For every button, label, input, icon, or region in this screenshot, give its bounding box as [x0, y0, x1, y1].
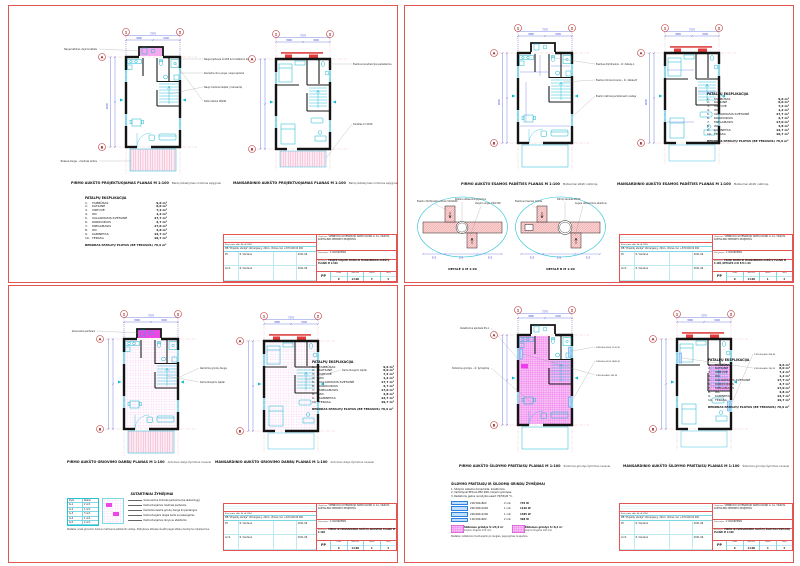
svg-text:9000: 9000: [106, 103, 109, 109]
svg-text:3290: 3290: [161, 319, 167, 322]
sheet-top-left: 1 2 A B 39803290 7270 9000 Nauja katilin…: [8, 5, 398, 283]
floor-heating-sample: Šildomos grindys S=8,2 m²klojimo žingsni…: [512, 525, 563, 533]
svg-text:B: B: [652, 427, 655, 431]
sheet-bottom-right: 1 2 A B 39803290 7270 22K-500x1000 1120 …: [404, 285, 794, 563]
title-block: Kval. patv. dok. Nr. A 2134 MB "Projektų…: [223, 234, 397, 282]
plan-caption: PIRMO AUKŠTO PROJEKTUOJAMAS PLANAS M 1:1…: [71, 181, 221, 185]
svg-text:A: A: [101, 55, 104, 59]
svg-text:B: B: [99, 427, 102, 431]
svg-text:3980: 3980: [134, 319, 140, 322]
svg-text:7270: 7270: [542, 28, 548, 31]
svg-text:3980: 3980: [687, 319, 693, 322]
svg-text:3980: 3980: [528, 315, 534, 318]
plan-caption: PIRMO AUKŠTO GRIOVIMO DARBŲ PLANAS M 1:1…: [67, 460, 211, 464]
plan-caption: PIRMO AUKŠTO ŠILDYMO PRIETAISŲ PLANAS M …: [459, 464, 610, 468]
svg-text:510: 510: [488, 257, 493, 260]
svg-text:7270: 7270: [300, 34, 306, 37]
svg-text:3980: 3980: [136, 37, 142, 40]
svg-text:Esamo dūmtraukio mūras 510x640: Esamo dūmtraukio mūras 510x640: [417, 200, 458, 203]
svg-text:Angos užtaisomos skiediniu: Angos užtaisomos skiediniu: [575, 202, 607, 205]
legend-entry: Demontuojamos durys su staktomis: [128, 518, 237, 523]
svg-text:Esamos krosnies mūras: Esamos krosnies mūras: [515, 200, 543, 203]
radiator-line-sample: [451, 512, 468, 517]
collector-box: [521, 364, 528, 369]
svg-text:7270: 7270: [542, 310, 548, 313]
svg-text:Kolektorinė spintelė KS-1: Kolektorinė spintelė KS-1: [460, 327, 489, 330]
svg-text:B: B: [239, 429, 242, 433]
svg-text:B: B: [493, 141, 496, 145]
svg-text:3980: 3980: [286, 39, 292, 42]
svg-text:A: A: [239, 339, 242, 343]
svg-text:Griaunama pertvara: Griaunama pertvara: [72, 330, 96, 333]
drawing-title: PROJEKTUOJAMI PIRMO IR MANSARDINIO AUKŠT…: [318, 259, 389, 265]
svg-text:7270: 7270: [148, 314, 154, 317]
floor-heating-sample: Šildomos grindys S=24,6 m²klojimo žingsn…: [451, 525, 504, 533]
svg-text:3290: 3290: [301, 321, 307, 324]
client-name: V. PAVARDENIS: [330, 251, 346, 254]
svg-text:Šildomos grindys – žr. žymėjim: Šildomos grindys – žr. žymėjimą: [452, 367, 489, 370]
sheet-top-right: 1 2 A B 39803290 7270 9000 Esamas dūmtra…: [404, 5, 794, 283]
svg-text:3290: 3290: [555, 315, 561, 318]
room-explication: PATALPŲ EKSPLIKACIJA 1.TAMBŪRAS9,6 m² 2.…: [85, 196, 167, 247]
explication-row: 10.TERASA19,7 m²: [707, 133, 789, 137]
room-explication: PATALPŲ EKSPLIKACIJA 1.TAMBŪRAS9,6 m² 2.…: [312, 360, 394, 411]
svg-text:Dūmų kanalas Ø150: Dūmų kanalas Ø150: [557, 198, 581, 201]
svg-text:3290: 3290: [163, 37, 169, 40]
detail-caption: DETALĖ B M 1:20: [513, 267, 608, 271]
svg-text:Pakūra užtaisoma plytomis: Pakūra užtaisoma plytomis: [455, 198, 487, 201]
room-explication: PATALPŲ EKSPLIKACIJA 1.TAMBŪRAS9,6 m² 2.…: [707, 92, 789, 143]
svg-text:250: 250: [557, 257, 562, 260]
floor-plan-ground-heating: 1 2 A B 39803290 7270 22K-500x1000 1120 …: [443, 304, 623, 462]
revision-rows: [224, 235, 316, 243]
svg-text:3980: 3980: [274, 321, 280, 324]
svg-text:3290: 3290: [702, 33, 708, 36]
svg-text:B: B: [251, 147, 254, 151]
explication-row: 10.TERASA19,7 m²: [312, 401, 394, 405]
heating-legend: ŠILDYMO PRIETAISŲ IR ŠILDOMŲ GRINDŲ ŽYMĖ…: [451, 482, 631, 538]
svg-text:7270: 7270: [150, 32, 156, 35]
radiator-line-sample: [451, 501, 468, 506]
svg-text:9000: 9000: [498, 99, 501, 105]
room-explication: PATALPŲ EKSPLIKACIJA 1.TAMBŪRAS9,6 m² 2.…: [708, 358, 790, 409]
svg-text:11K-500x600 398 W: 11K-500x600 398 W: [754, 354, 775, 356]
svg-text:Nauja katilinė, dujinis katila: Nauja katilinė, dujinis katilas: [64, 48, 98, 51]
svg-text:Terasos danga – medinės lentos: Terasos danga – medinės lentos: [60, 160, 97, 163]
legend-table: Žym.Kiekis G-12 vnt. G-21 vnt. G-33 vnt.…: [67, 498, 99, 526]
svg-text:B: B: [101, 145, 104, 149]
radiator-schedule-row: 11K-500x6002 vnt.398 W: [451, 517, 631, 523]
svg-text:250: 250: [459, 257, 464, 260]
svg-text:A: A: [493, 333, 496, 337]
radiator-line-sample: [451, 506, 468, 511]
plan-caption: MANSARDINIO AUKŠTO ESAMOS PADĖTIES PLANA…: [617, 182, 768, 186]
svg-text:B: B: [640, 141, 643, 145]
svg-text:7270: 7270: [689, 28, 695, 31]
svg-text:Turėklas h=1100: Turėklas h=1100: [353, 123, 373, 126]
svg-text:Valymo anga 130x130: Valymo anga 130x130: [475, 202, 501, 205]
svg-text:3290: 3290: [555, 33, 561, 36]
svg-text:510: 510: [530, 257, 535, 260]
title-block: Kval. patv. dok. Nr. A 2134 MB "Projektų…: [223, 503, 397, 551]
sheet-index-table: PP Laida0 Mastelis1:100 Lapas3 Lapų4: [317, 271, 396, 281]
plan-caption: PIRMO AUKŠTO ESAMOS PADĖTIES PLANAS M 1:…: [461, 182, 597, 186]
svg-text:A: A: [251, 57, 254, 61]
svg-text:3980: 3980: [675, 33, 681, 36]
svg-text:21K-500x800 745 W: 21K-500x800 745 W: [596, 375, 617, 377]
svg-text:3980: 3980: [528, 33, 534, 36]
floor-plan-mansard-proposed: 1 2 A B 39803290 7270 Esamos konstrukcij…: [231, 28, 361, 176]
plan-caption: MANSARDINIO AUKŠTO GRIOVIMO DARBŲ PLANAS…: [215, 460, 374, 464]
detail-caption: DETALĖ A M 1:20: [415, 267, 510, 271]
svg-text:A: A: [493, 51, 496, 55]
hatch-sample: [102, 498, 124, 524]
plan-caption: MANSARDINIO AUKŠTO PROJEKTUOJAMAS PLANAS…: [233, 181, 398, 185]
legend-note: 3. Radiatorių galios nurodytos esant 70/…: [451, 495, 631, 498]
title-block: Kval. patv. dok. Nr. A 2134 MB "Projektų…: [619, 503, 793, 551]
company-address: Ukmergės g. 220-1, Vilnius, tel. +370 60…: [249, 247, 303, 250]
svg-text:A: A: [652, 337, 655, 341]
dimension-labels: 39803290 7270 9000: [106, 32, 169, 109]
explication-row: 10.TERASA19,7 m²: [708, 399, 790, 403]
floor-plan-ground-existing: 1 2 A B 39803290 7270 9000 Esamas dūmtra…: [445, 22, 615, 178]
plan-caption: MANSARDINIO AUKŠTO ŠILDYMO PRIETAISŲ PLA…: [623, 464, 789, 468]
company-name: MB "Projektų studija": [225, 247, 248, 250]
svg-text:Esamos konstrukcijos paliekamo: Esamos konstrukcijos paliekamos: [353, 63, 392, 66]
detail-b: 510250510 Esamos krosnies mūras Dūmų kan…: [513, 194, 608, 266]
svg-text:510: 510: [432, 257, 437, 260]
annotations: Esamos konstrukcijos paliekamos Turėklas…: [326, 63, 392, 158]
sheet-bottom-left: 1 2 A B 39803290 7270 Griaunama pertvara…: [8, 285, 398, 563]
object-name: VIENBUČIO GYVENAMOJO NAMO KAUNO G. 1A, V…: [318, 235, 390, 241]
explication-row: 10.TERASA19,7 m²: [85, 237, 167, 241]
svg-text:B: B: [493, 423, 496, 427]
svg-text:3290: 3290: [714, 319, 720, 322]
floor-plan-ground-demolition: 1 2 A B 39803290 7270 Griaunama pertvara…: [51, 308, 216, 458]
detail-a: 510250510 Esamo dūmtraukio mūras 510x640…: [415, 194, 510, 266]
floor-plan-ground-proposed: 1 2 A B 39803290 7270 9000 Nauja katilin…: [53, 26, 223, 178]
svg-text:7270: 7270: [288, 316, 294, 319]
svg-text:510: 510: [586, 257, 591, 260]
demolition-legend: SUTARTINIAI ŽYMĖJIMAI Žym.Kiekis G-12 vn…: [67, 492, 237, 531]
svg-text:A: A: [640, 51, 643, 55]
svg-text:Dušo kabina 90x90: Dušo kabina 90x90: [204, 100, 227, 103]
title-block: Kval. patv. dok. Nr. A 2134 MB "Projektų…: [619, 234, 793, 282]
svg-text:7270: 7270: [701, 314, 707, 317]
drawing-canvas: 1 2 A B 39803290 7270 9000 Nauja katilin…: [0, 0, 800, 566]
svg-text:9000: 9000: [645, 99, 648, 105]
svg-text:3290: 3290: [313, 39, 319, 42]
svg-text:A: A: [99, 337, 102, 341]
radiator-line-sample: [451, 518, 468, 523]
